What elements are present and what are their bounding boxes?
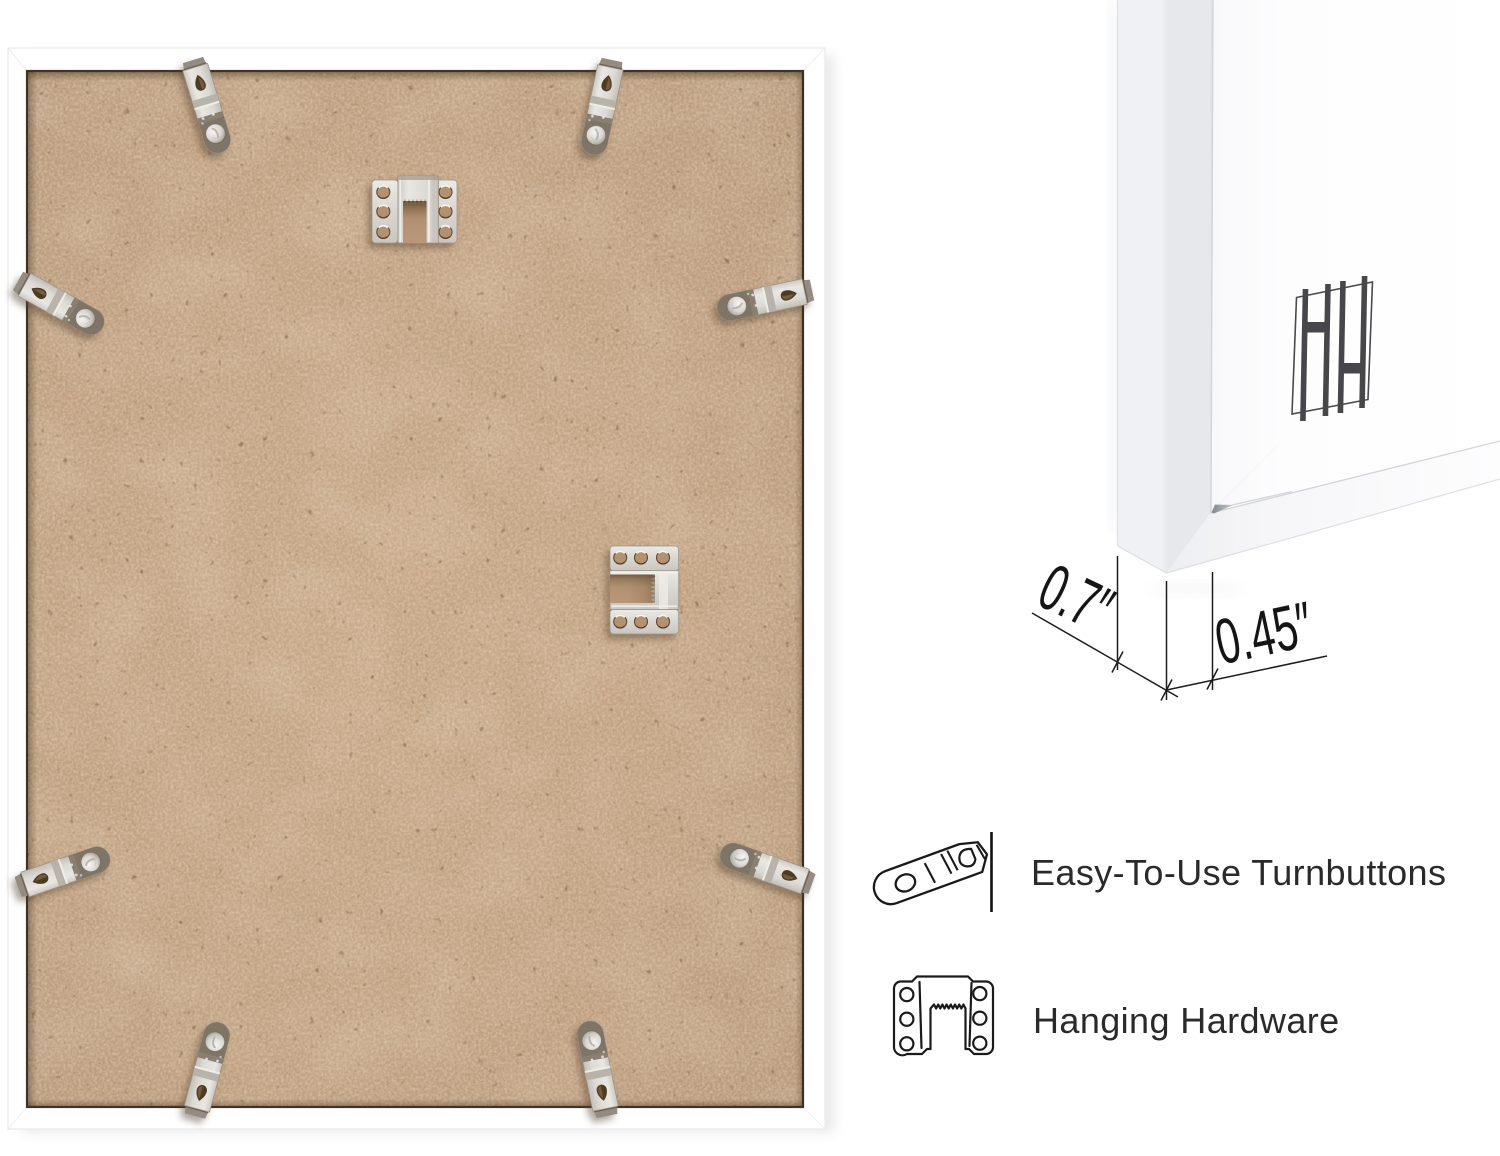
svg-text:Easy-To-Use Turnbuttons: Easy-To-Use Turnbuttons	[1031, 852, 1446, 893]
svg-text:Hanging Hardware: Hanging Hardware	[1033, 1000, 1340, 1041]
